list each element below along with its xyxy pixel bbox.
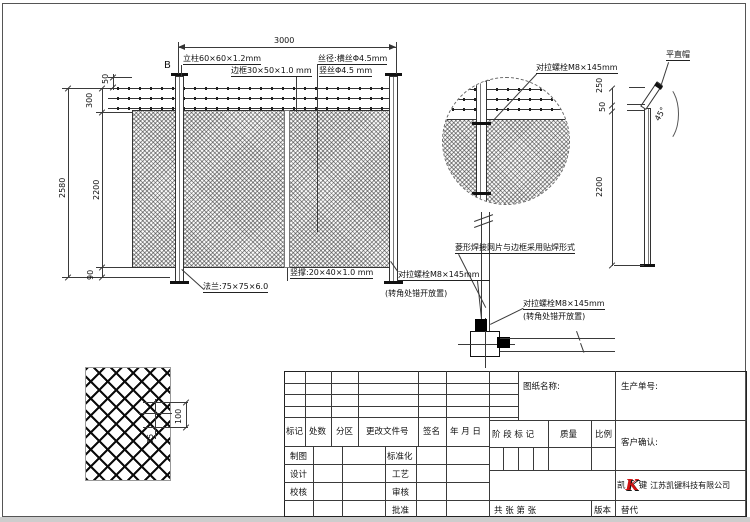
post-cap (171, 73, 188, 76)
grid-line (418, 371, 419, 446)
grid-line (331, 371, 332, 446)
grid-line (284, 500, 747, 501)
brace-spec-label: 竖撑:20×40×1.0 mm (290, 268, 373, 279)
ext-line (627, 104, 645, 105)
bottom-strip (0, 517, 750, 522)
leader (317, 64, 318, 232)
chain-link-mesh-panel (132, 110, 397, 268)
bolt-clamp (472, 122, 491, 125)
bolt-spec-label: 对拉螺栓M8×145mm (536, 63, 618, 74)
wire-h-spec-label: 丝径:横丝Φ4.5mm (318, 54, 387, 65)
dim-arrow (389, 44, 396, 50)
rail-line (500, 351, 615, 352)
dim-100: 100 (174, 409, 183, 424)
tb-header-count: 处数 (309, 425, 326, 437)
tb-header-date: 年 月 日 (450, 425, 481, 437)
post-cap (385, 73, 402, 76)
tb-header-zone: 分区 (336, 425, 353, 437)
grid-line (385, 446, 386, 517)
company-logo-row: 凯 K 键 江苏凯键科技有限公司 (615, 470, 747, 500)
tb-header-change-doc: 更改文件号 (366, 425, 409, 437)
tb-role-approved: 批准 (392, 504, 409, 516)
bolt-clamp (472, 192, 491, 195)
rail-line (500, 338, 615, 339)
dim-90: 90 (86, 270, 95, 280)
tb-production-no: 生产单号: (621, 380, 658, 392)
ext-line (62, 277, 170, 278)
bolt-block (475, 319, 487, 331)
tb-sheets: 共 张 第 张 (494, 504, 536, 516)
grid-line (416, 446, 417, 517)
bolt-spec-label: 对拉螺栓M8×145mm (398, 270, 490, 281)
company-k-logo: K (626, 478, 639, 493)
tb-weight: 质量 (560, 428, 577, 440)
logo-suffix: 键 (639, 479, 648, 491)
bolt-note-label: (转角处错开放置) (523, 312, 585, 321)
barbed-wire (443, 108, 570, 111)
tb-drawing-name: 图纸名称: (523, 380, 560, 392)
tb-customer-confirm: 客户确认: (621, 436, 658, 448)
wire-v-spec-label: 竖丝Φ4.5 mm (319, 66, 372, 77)
grid-line (591, 420, 592, 470)
ext-line (629, 87, 645, 88)
dim-2580: 2580 (58, 178, 67, 198)
ext-line (143, 402, 188, 403)
fence-post-left (175, 76, 184, 283)
tb-header-signature: 签名 (423, 425, 440, 437)
tb-role-process: 工艺 (392, 468, 409, 480)
ext-line (627, 110, 645, 111)
dim-2200: 2200 (595, 177, 604, 197)
dim-3000: 3000 (274, 36, 294, 45)
grid-line (446, 371, 447, 517)
tb-role-reviewed: 审核 (392, 486, 409, 498)
tb-header-mark: 标记 (286, 425, 303, 437)
grid-line (284, 394, 518, 395)
dim-50: 50 (101, 74, 110, 84)
barbed-wire (443, 88, 570, 91)
grid-line (358, 371, 359, 446)
cap-label: 平直帽 (666, 50, 690, 61)
dim-line-2580 (68, 88, 69, 277)
dim-250: 250 (595, 78, 604, 93)
grid-line (591, 500, 592, 517)
grid-line (503, 447, 504, 470)
grid-line (284, 383, 518, 384)
flange-spec-label: 法兰:75×75×6.0 (203, 282, 268, 293)
ext-line (614, 265, 644, 266)
grid-line (342, 446, 343, 517)
barbed-wire (108, 97, 397, 100)
tb-version: 版本 (594, 504, 611, 516)
post-profile (644, 108, 651, 265)
dim-50: 50 (598, 102, 607, 112)
fence-post-right (389, 76, 398, 283)
detail-marker-b: B (164, 60, 171, 72)
grid-line (284, 482, 489, 483)
tb-role-drafted: 制图 (290, 450, 307, 462)
grid-line (284, 406, 518, 407)
grid-line (313, 446, 314, 517)
grid-line (548, 420, 549, 470)
detail-circle (442, 77, 570, 205)
dim-line-3000 (178, 47, 396, 48)
grid-line (489, 420, 747, 421)
grid-line (489, 447, 615, 448)
weld-note-label: 菱形焊接网片与边框采用贴焊形式 (455, 243, 575, 254)
post-flange (170, 281, 189, 284)
company-name: 江苏凯键科技有限公司 (650, 480, 730, 491)
grid-line (284, 446, 489, 447)
barbed-wire (108, 87, 397, 90)
barbed-wire (443, 98, 570, 101)
mesh-detail-fill (443, 119, 570, 205)
diamond-mesh-sample (85, 367, 171, 481)
tb-role-checked: 校核 (290, 486, 307, 498)
tb-replace: 替代 (621, 504, 638, 516)
bolt-note-label: (转角处错开放置) (385, 289, 447, 298)
grid-line (305, 371, 306, 446)
dim-line-post (612, 88, 613, 266)
grid-line (284, 417, 518, 418)
drawing-sheet: B 3000 立柱60×60×1.2mm 边框30×50×1.0 mm 丝径:横… (0, 0, 750, 522)
grid-line (284, 464, 489, 465)
vertical-brace (284, 110, 290, 268)
tb-scale: 比例 (595, 428, 612, 440)
grid-line (518, 447, 519, 470)
post-detail (476, 81, 487, 205)
dim-2200: 2200 (92, 180, 101, 200)
leader (296, 77, 297, 112)
grid-line (489, 371, 490, 517)
grid-line (533, 447, 534, 470)
tb-role-designed: 设计 (290, 468, 307, 480)
frame-spec-label: 边框30×50×1.0 mm (231, 66, 312, 77)
tb-role-standardized: 标准化 (387, 450, 413, 462)
bolt-spec-label: 对拉螺栓M8×145mm (523, 299, 605, 310)
dim-line-left (102, 88, 103, 277)
tb-stage-mark: 阶 段 标 记 (492, 428, 534, 440)
grid-line (518, 371, 519, 420)
dim-55: 55 (146, 434, 155, 444)
post-cap (473, 78, 490, 81)
leader (181, 65, 182, 76)
ext-line (143, 427, 188, 428)
post-spec-label: 立柱60×60×1.2mm (183, 54, 261, 65)
dim-arrow (178, 44, 185, 50)
ext-line (396, 42, 397, 74)
post-flange (384, 281, 403, 284)
dim-line-100 (186, 402, 187, 427)
dim-300: 300 (85, 93, 94, 108)
logo-prefix: 凯 (617, 479, 626, 491)
brace-leader (287, 268, 288, 281)
